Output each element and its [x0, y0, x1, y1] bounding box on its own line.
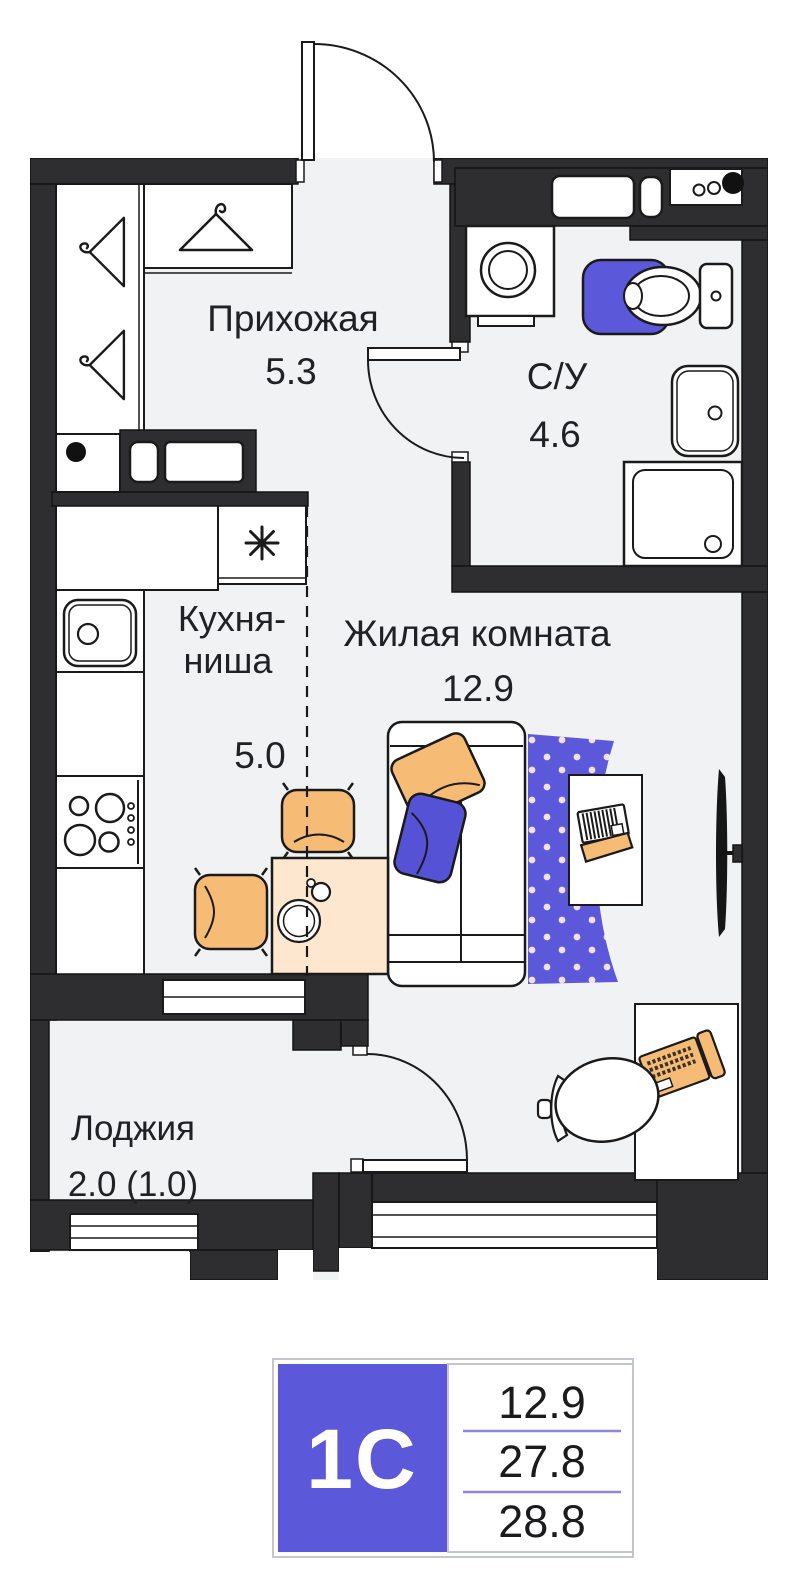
window-living	[372, 1202, 657, 1248]
legend-area: 27.8	[498, 1436, 586, 1487]
legend-living-area: 12.9	[498, 1377, 586, 1428]
kitchen-sink	[64, 600, 136, 666]
dining-chair	[282, 783, 354, 859]
shower-cabin	[624, 462, 742, 566]
utility-box	[56, 434, 120, 492]
room-label-living: Жилая комната	[343, 613, 611, 654]
dining-chair	[195, 868, 267, 956]
floor-plan: Прихожая 5.3 С/У 4.6 Кухня- ниша 5.0 Жил…	[0, 0, 800, 1586]
window-kitchen-loggia	[163, 980, 305, 1014]
wardrobe-left	[56, 184, 144, 434]
washing-machine	[466, 226, 554, 326]
fridge-asterisk-icon	[246, 527, 278, 559]
plate	[278, 900, 320, 942]
dining-table	[272, 858, 388, 974]
legend-type-label: 1С	[306, 1412, 417, 1506]
room-area-loggia: 2.0 (1.0)	[68, 1165, 198, 1204]
toilet	[583, 260, 732, 334]
room-label-kitchen-line1: Кухня-	[178, 598, 286, 639]
vent-dot-icon	[66, 442, 86, 462]
room-area-bathroom: 4.6	[529, 414, 580, 455]
room-label-kitchen-line2: ниша	[184, 640, 274, 681]
room-area-kitchen: 5.0	[234, 735, 285, 776]
room-label-hallway: Прихожая	[207, 298, 378, 339]
legend-total-area: 28.8	[498, 1496, 586, 1547]
room-area-hallway: 5.3	[265, 351, 316, 392]
duct-box	[130, 442, 243, 482]
plan-legend: 1С 12.9 27.8 28.8	[273, 1359, 633, 1557]
fridge	[218, 504, 306, 584]
room-label-loggia: Лоджия	[71, 1109, 195, 1148]
room-area-living: 12.9	[442, 668, 514, 709]
room-label-bathroom: С/У	[527, 356, 588, 397]
bathroom-sink	[672, 366, 738, 456]
window-loggia	[70, 1214, 198, 1250]
